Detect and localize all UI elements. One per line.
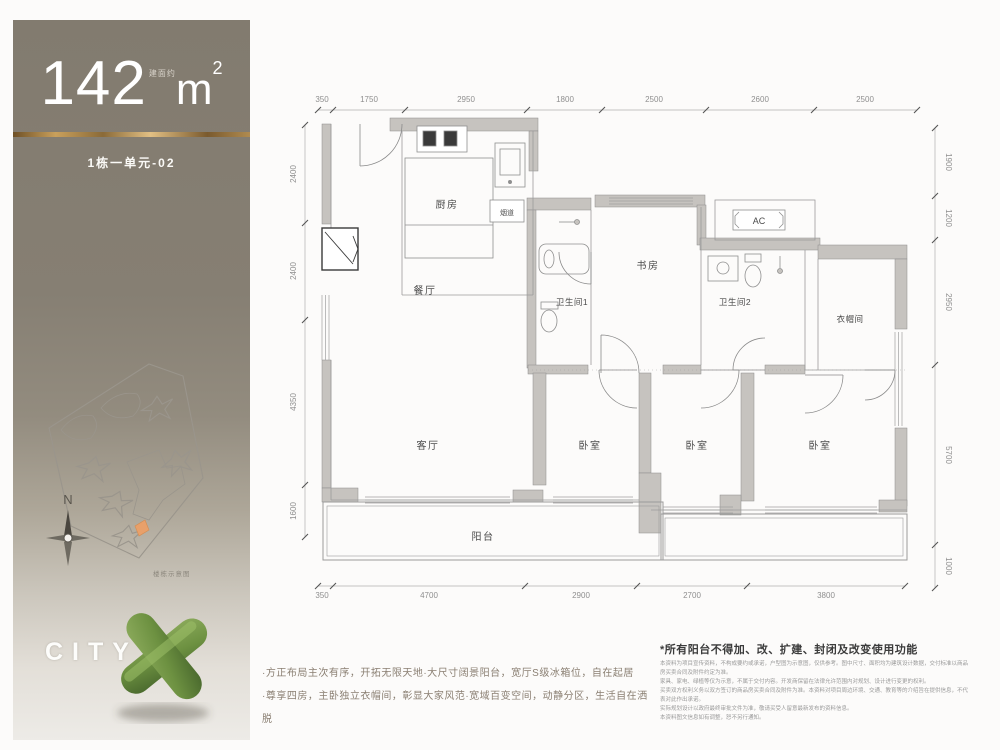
compass: N [43, 490, 93, 570]
poster-canvas: 142建面约m2 1栋一单元-02 [0, 0, 1000, 750]
room-label-dining: 餐厅 [414, 284, 437, 297]
dim-label: 2500 [856, 95, 874, 104]
area-prefix-label: 建面约 [149, 69, 176, 78]
toilet [541, 310, 557, 332]
site-unit-highlight [135, 520, 149, 536]
shower-head [778, 269, 783, 274]
room-label-bedroom1: 卧室 [579, 439, 602, 452]
dimension-right: 1900 1200 2950 5700 1000 [932, 125, 953, 591]
selling-points: ·方正布局主次有序，开拓无限天地·大尺寸阔景阳台，宽厅S级冰箱位，自在起居 ·尊… [262, 662, 652, 731]
washbasin [708, 256, 738, 281]
dim-label: 2600 [751, 95, 769, 104]
room-label-living: 客厅 [417, 439, 440, 452]
toilet [745, 265, 761, 287]
dim-label: 2950 [457, 95, 475, 104]
brand-x-object [101, 595, 236, 730]
ac-label: AC [753, 216, 766, 226]
dim-label: 350 [315, 95, 329, 104]
site-building-icon [141, 396, 172, 421]
dim-label: 3800 [817, 591, 835, 600]
entry-cabinet [322, 228, 358, 270]
site-building-a [61, 415, 97, 440]
area-unit: m [176, 65, 213, 114]
site-building-icon [75, 453, 112, 485]
dim-label: 1900 [944, 153, 953, 171]
room-label-balcony: 阳台 [472, 530, 495, 543]
area-headline: 142建面约m2 [13, 48, 250, 119]
dimension-left: 2400 2400 4350 1600 [289, 122, 308, 540]
dim-label: 2400 [289, 262, 298, 280]
dim-label: 2700 [683, 591, 701, 600]
floorplan-area: 350 1750 2950 1800 2500 2600 2500 2400 2… [265, 40, 985, 645]
compass-hub [64, 534, 72, 542]
dim-label: 4350 [289, 393, 298, 411]
dim-label: 2400 [289, 165, 298, 183]
room-label-bath1: 卫生间1 [556, 297, 588, 307]
stove-burner [444, 131, 457, 146]
walls [322, 118, 907, 533]
area-number: 142 [40, 49, 146, 118]
structure-lines [331, 124, 907, 510]
room-label-study: 书房 [637, 259, 660, 272]
dim-label: 2950 [944, 293, 953, 311]
site-building-icon [95, 485, 134, 521]
compass-n-label: N [63, 492, 72, 507]
room-label-bedroom3: 卧室 [809, 439, 832, 452]
dim-label: 350 [315, 591, 329, 600]
dim-label: 5700 [944, 446, 953, 464]
room-label-kitchen: 厨房 [436, 198, 459, 211]
kitchen-fixtures [405, 126, 525, 258]
gold-divider [13, 132, 250, 137]
dim-label: 1600 [289, 502, 298, 520]
building-unit-label: 1栋一单元-02 [13, 154, 250, 171]
selling-point-1: ·方正布局主次有序，开拓无限天地·大尺寸阔景阳台，宽厅S级冰箱位，自在起居 [262, 662, 652, 685]
dimension-bottom: 350 4700 2900 2700 3800 [315, 583, 908, 600]
selling-point-2: ·尊享四房，主卧独立衣帽间，彰显大家风范·宽域百变空间，动静分区，生活自在洒脱 [262, 685, 652, 731]
site-courtyard [127, 450, 185, 520]
dim-label: 4700 [420, 591, 438, 600]
bath2-fixtures [708, 254, 783, 287]
room-label-bath2: 卫生间2 [719, 297, 751, 307]
toilet-tank [745, 254, 761, 262]
dim-label: 1000 [944, 557, 953, 575]
bath1-fixtures [539, 220, 589, 333]
dim-label: 1200 [944, 209, 953, 227]
dim-label: 2900 [572, 591, 590, 600]
site-plan-caption: 楼栋示意图 [153, 568, 191, 578]
area-exponent: 2 [213, 58, 223, 78]
dim-label: 1750 [360, 95, 378, 104]
balcony-outline [323, 502, 907, 560]
dim-label: 2500 [645, 95, 663, 104]
x-shadow [117, 704, 209, 722]
dimension-top: 350 1750 2950 1800 2500 2600 2500 [315, 95, 920, 113]
room-label-closet: 衣帽间 [836, 314, 863, 324]
left-brochure-panel: 142建面约m2 1栋一单元-02 [13, 20, 250, 740]
room-label-bedroom2: 卧室 [686, 439, 709, 452]
disclaimer-body: 本资料为项目宣传资料，不构成要约或承诺，户型图为示意图，仅供参考。图中尺寸、面积… [660, 660, 968, 723]
flue-label: 烟道 [500, 208, 514, 217]
dim-label: 1800 [556, 95, 574, 104]
stove-burner [423, 131, 436, 146]
floorplan-svg: 350 1750 2950 1800 2500 2600 2500 2400 2… [265, 40, 985, 640]
site-building-b [101, 393, 140, 418]
disclaimer-title: *所有阳台不得加、改、扩建、封闭及改变使用功能 [660, 641, 970, 657]
